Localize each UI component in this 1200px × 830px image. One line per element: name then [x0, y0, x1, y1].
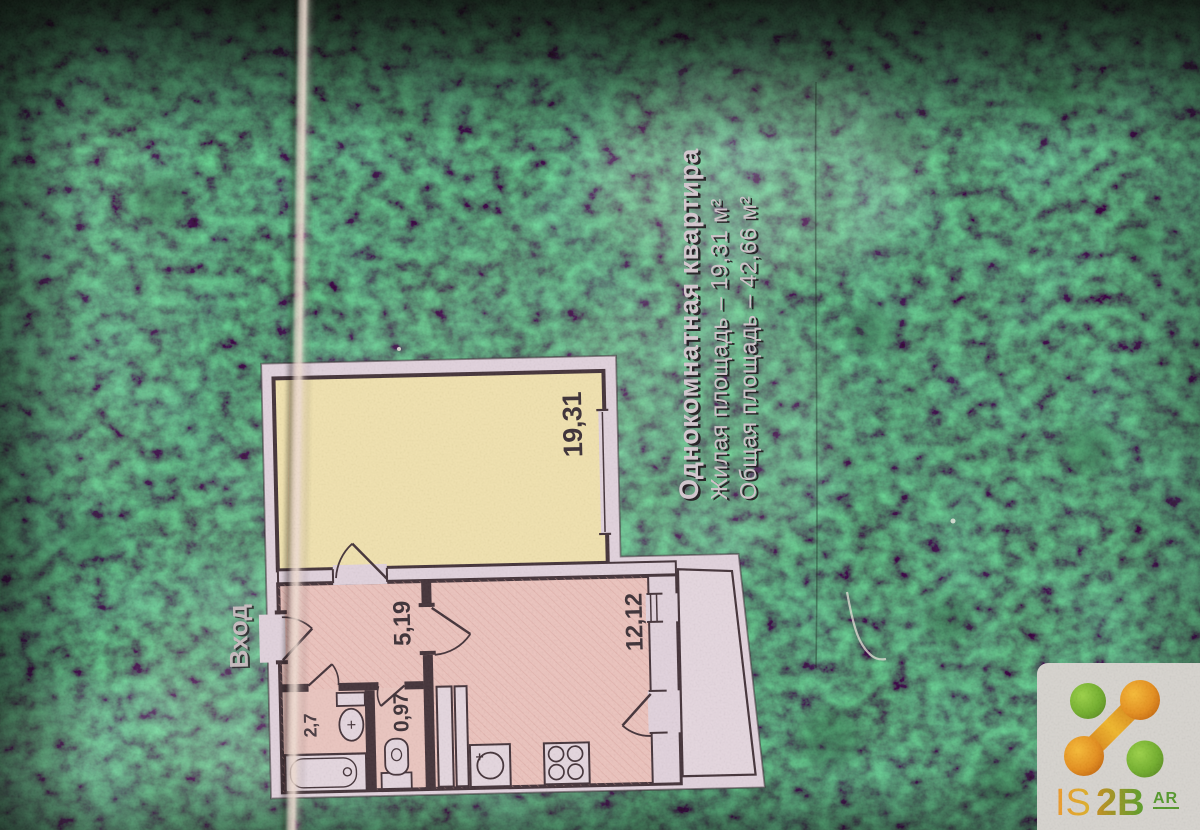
photo-grain	[0, 0, 1200, 830]
photo-of-floor-plan-page: 19,31 5,19 12,12 0,97 2,7 Вход Вход Одно…	[0, 0, 1200, 830]
